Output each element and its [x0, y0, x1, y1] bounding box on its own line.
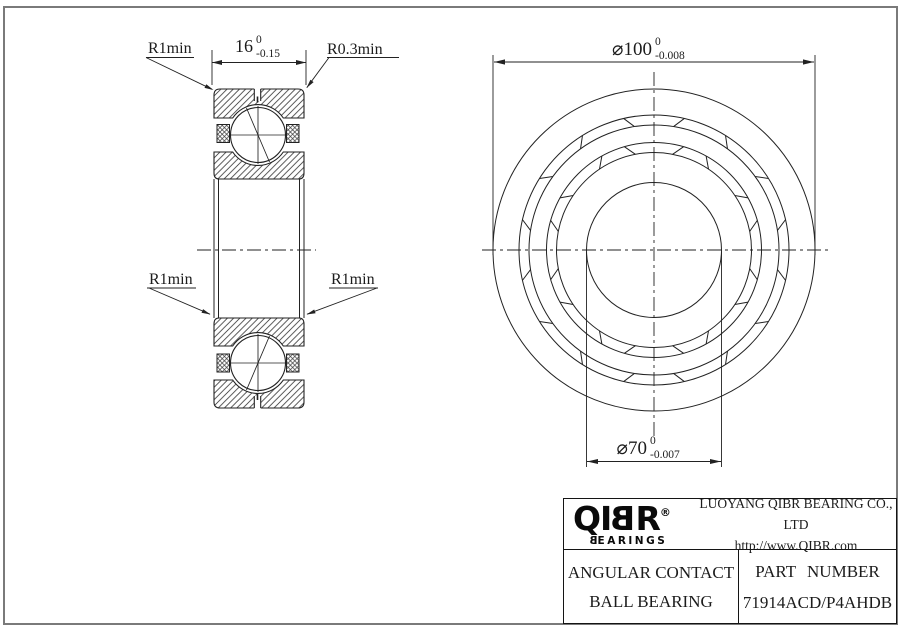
label-r1min-mid-left: R1min: [149, 271, 193, 288]
bottom-notch: [254, 394, 260, 409]
cage-pocket-edge: [540, 177, 553, 179]
label-r1min-top-left: R1min: [148, 40, 192, 57]
title-block: QIBR® BEARINGS LUOYANG QIBR BEARING CO.,…: [563, 498, 897, 624]
product-name-line2: BALL BEARING: [564, 587, 738, 616]
cage-pocket-edge: [624, 147, 635, 155]
cage-pocket-edge: [735, 302, 748, 304]
cage-pocket-edge: [551, 269, 559, 280]
od-dim-tol-lower: -0.008: [655, 50, 685, 62]
cage-pocket-edge: [755, 177, 768, 179]
title-block-bottom-row: ANGULAR CONTACT BALL BEARING PART NUMBER…: [564, 550, 896, 623]
od-dim-value: ⌀100: [612, 39, 652, 60]
product-name-line1: ANGULAR CONTACT: [564, 558, 738, 587]
cage-pocket-edge: [560, 302, 573, 304]
brand-logo-text: QIBR: [573, 502, 660, 535]
cage-pocket-edge: [726, 351, 728, 364]
registered-trademark-icon: ®: [660, 506, 671, 519]
part-number-cell: PART NUMBER 71914ACD/P4AHDB: [739, 550, 896, 623]
cage-pocket-edge: [726, 136, 728, 149]
leader-r1min-mid-right: [307, 288, 379, 315]
cage-pocket-edge: [777, 220, 785, 231]
cage-pocket-edge: [674, 373, 685, 381]
cage-pocket-edge: [706, 156, 708, 169]
cage-pocket-edge: [551, 220, 559, 231]
cage-pocket-edge: [673, 346, 684, 354]
leader-r03min-top-right: [307, 58, 400, 89]
bore-lines: [214, 179, 304, 318]
cage-pocket-edge: [599, 156, 601, 169]
front-view: [482, 72, 828, 437]
width-dim-value: 16: [235, 36, 253, 56]
cage-pocket-edge: [777, 270, 785, 281]
cage-pocket-edge: [581, 136, 583, 149]
cross-section-view: [197, 88, 316, 408]
bore-dim-tol-lower: -0.007: [650, 449, 680, 461]
od-dim-tol-upper: 0: [655, 36, 661, 48]
width-dim-tol-upper: 0: [256, 34, 262, 46]
cage-pocket-edge: [674, 118, 685, 126]
cage-pocket-edge: [599, 331, 601, 344]
cage-bottom-right: [287, 354, 300, 372]
company-info: LUOYANG QIBR BEARING CO., LTD http://www…: [696, 492, 896, 556]
bore-dim-value: ⌀70: [617, 438, 647, 459]
cage-pocket-edge: [706, 331, 708, 344]
leader-r1min-top-left: [146, 58, 214, 91]
cage-pocket-edge: [750, 269, 758, 280]
cage-pocket-edge: [755, 322, 768, 324]
cage-pocket-edge: [581, 351, 583, 364]
cage-pocket-edge: [750, 220, 758, 231]
cage-pocket-edge: [735, 195, 748, 197]
company-name: LUOYANG QIBR BEARING CO., LTD: [696, 493, 896, 535]
title-block-header-row: QIBR® BEARINGS LUOYANG QIBR BEARING CO.,…: [564, 499, 896, 550]
cage-pocket-edge: [522, 220, 530, 231]
cage-top-right: [287, 125, 300, 143]
leader-r1min-mid-left: [147, 288, 211, 315]
part-number-label: PART NUMBER: [739, 556, 896, 587]
product-name-cell: ANGULAR CONTACT BALL BEARING: [564, 550, 739, 623]
bore-dim-tol-upper: 0: [650, 435, 656, 447]
cage-pocket-edge: [624, 373, 635, 381]
part-number-value: 71914ACD/P4AHDB: [739, 587, 896, 618]
brand-logo: QIBR® BEARINGS: [564, 502, 696, 547]
cage-pocket-edge: [624, 346, 635, 354]
cage-pocket-edge: [673, 147, 684, 155]
label-r03min-top-right: R0.3min: [327, 41, 383, 58]
drawing-page: R1min R0.3min R1min R1min 16 0 -0.15 ⌀10…: [0, 0, 900, 636]
cage-pocket-edge: [624, 118, 635, 126]
cage-pocket-edge: [560, 195, 573, 197]
label-r1min-mid-right: R1min: [331, 271, 375, 288]
top-notch: [254, 88, 260, 102]
cage-top-left: [217, 125, 230, 143]
cage-pocket-edge: [540, 322, 553, 324]
cage-bottom-left: [217, 354, 230, 372]
cage-pocket-edge: [522, 270, 530, 281]
brand-tagline: BEARINGS: [587, 536, 696, 547]
width-dim-tol-lower: -0.15: [256, 48, 280, 60]
